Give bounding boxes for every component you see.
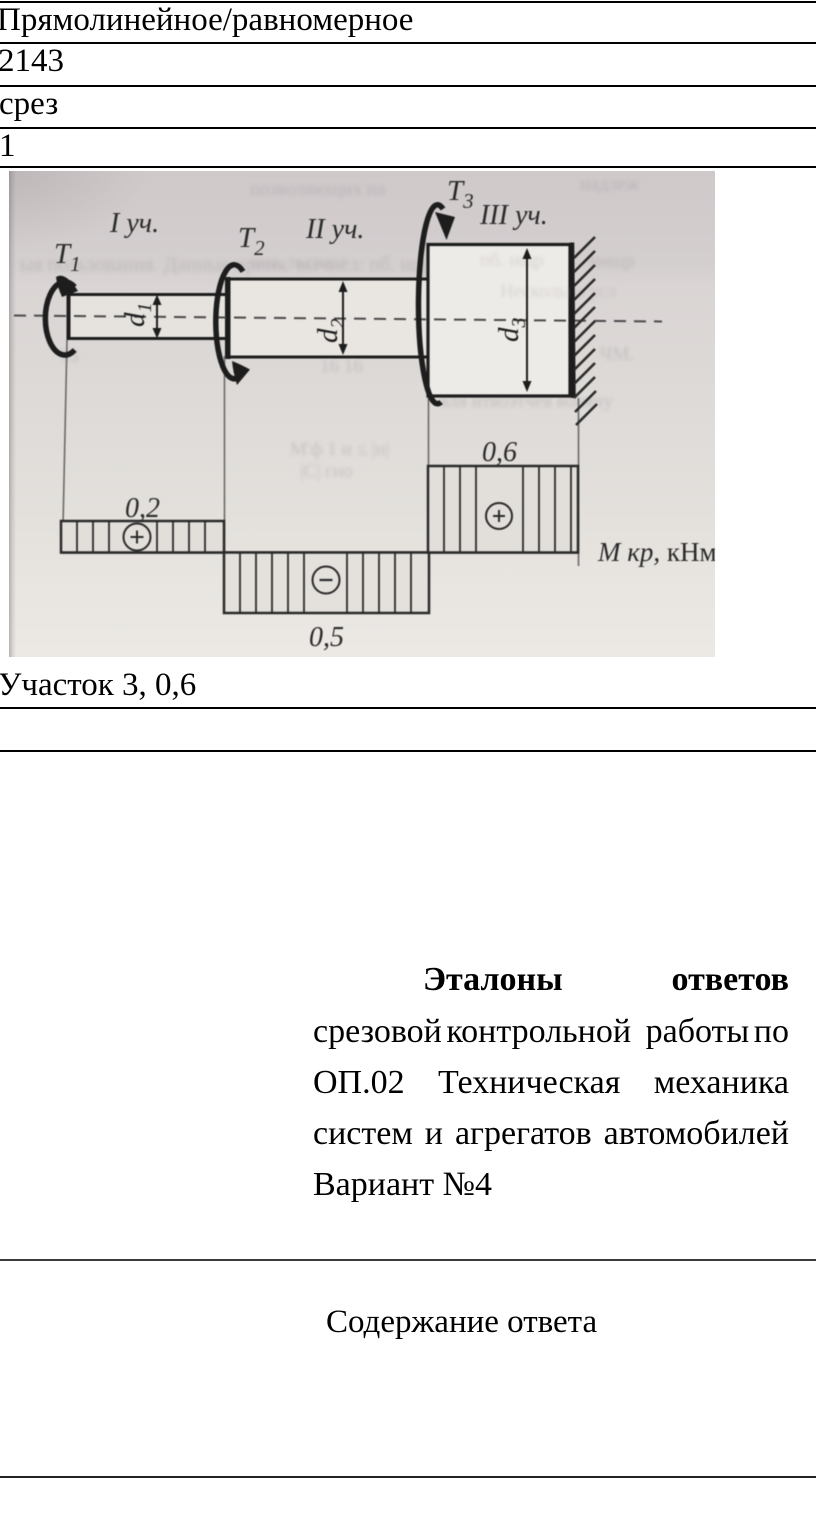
- svg-text:16 16: 16 16: [320, 356, 363, 377]
- svg-text:I уч.: I уч.: [109, 208, 159, 239]
- svg-text:0,2: 0,2: [125, 493, 160, 524]
- svg-text:ЧМ.: ЧМ.: [600, 344, 634, 365]
- svg-text:Несколько усл: Несколько усл: [500, 281, 617, 302]
- svg-text:T3: T3: [447, 175, 474, 213]
- svg-text:нищр: нищр: [590, 251, 634, 272]
- svg-text:|С| гно: |С| гно: [300, 461, 353, 482]
- svg-text:0,6: 0,6: [482, 437, 517, 468]
- svg-text:II уч.: II уч.: [305, 214, 364, 245]
- svg-text:иня. вычисл: иня. вычисл: [250, 252, 348, 273]
- svg-text:пб. нщр: пб. нщр: [480, 250, 544, 271]
- svg-text:М кр, кНм: М кр, кНм: [597, 537, 715, 567]
- svg-text:III уч.: III уч.: [479, 200, 548, 231]
- svg-text:0,5: 0,5: [309, 622, 344, 653]
- svg-text:надлеж: надлеж: [580, 174, 640, 195]
- svg-text:М'ф 1 и ≤ |н|: М'ф 1 и ≤ |н|: [290, 439, 390, 460]
- svg-text:позволяющих на: позволяющих на: [250, 179, 386, 200]
